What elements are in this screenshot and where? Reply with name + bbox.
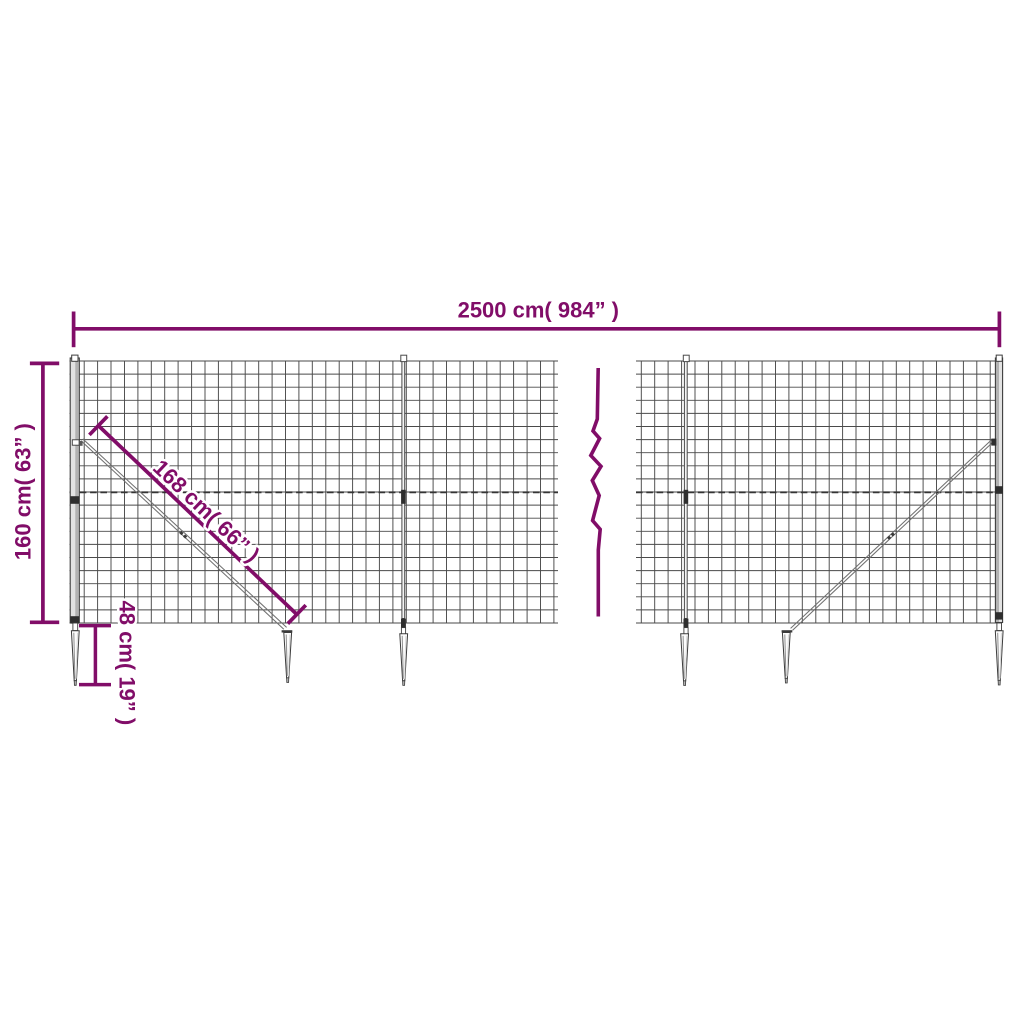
svg-text:160 cm( 63” ): 160 cm( 63” ) <box>10 423 35 560</box>
svg-text:2500 cm( 984” ): 2500 cm( 984” ) <box>458 297 619 322</box>
svg-text:48 cm( 19” ): 48 cm( 19” ) <box>115 601 140 726</box>
